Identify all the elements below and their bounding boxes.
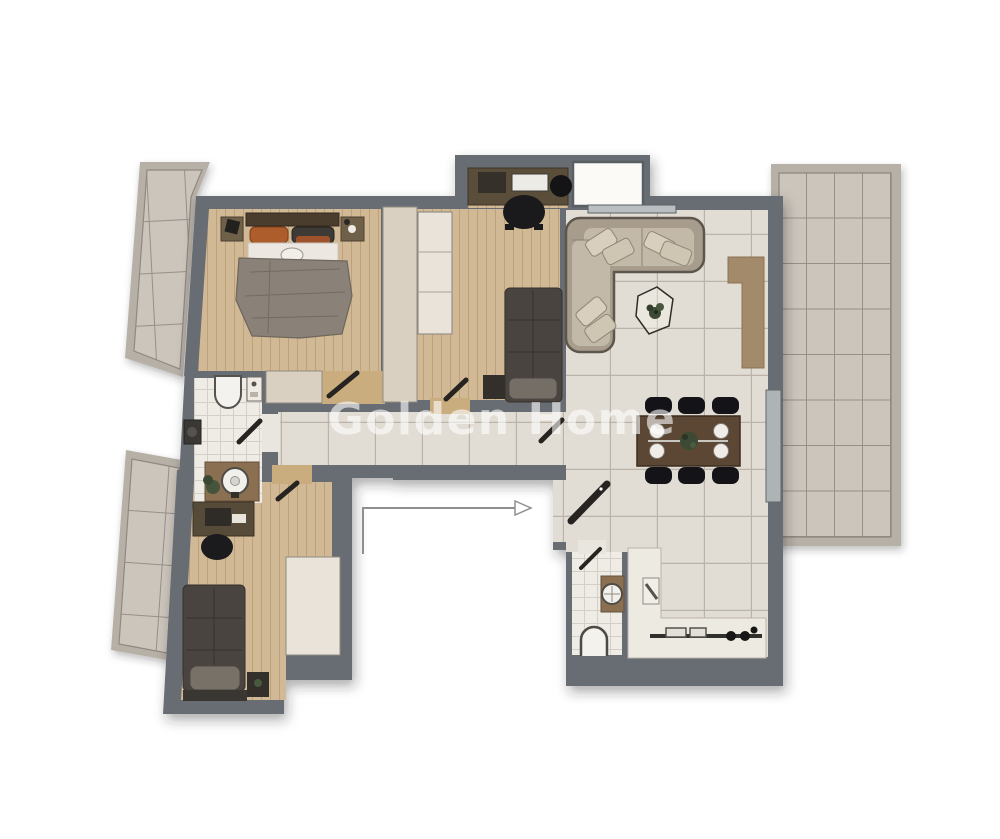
stool [550,175,572,197]
dining-chair [712,397,739,414]
floor-plan-canvas: Golden Home [0,0,1000,839]
doorway-wc [578,540,606,554]
dining-chair [678,397,705,414]
monitor [512,174,548,191]
laptop [205,508,231,526]
dining-chair [645,467,672,484]
kitchen-sink [690,628,706,637]
watermark: Golden Home [328,394,677,445]
closet-hall [266,371,322,403]
pillow [250,227,288,243]
window-living-top [588,205,676,213]
bed-headboard [246,213,339,226]
bed-blanket [236,258,352,338]
closet-between-bedrooms [383,207,417,402]
doorway-bath [262,414,280,452]
plate [714,444,729,459]
plate [650,444,665,459]
balcony-door-right [766,390,781,502]
stove-burner [726,631,736,641]
entrance-arrow [363,501,531,554]
plate [714,424,729,439]
laptop [478,172,506,193]
toilet [215,376,241,408]
office-chair [503,195,545,229]
doorway-bedroom3 [272,465,312,484]
kitchen-sink [666,628,686,637]
dining-chair [678,467,705,484]
wc-toilet [581,627,607,656]
centerpiece-plant [680,432,698,450]
floor-plan: Golden Home [0,0,1000,839]
stove-burner [740,631,750,641]
opening-entry [553,480,568,542]
bed-headboard [183,690,247,701]
closet-bedroom3 [286,557,340,655]
dining-chair [712,467,739,484]
shaft [573,162,643,206]
bed-pillow [190,666,240,690]
balcony-right [771,164,901,546]
office-chair [201,534,233,560]
wardrobe-bedroom2 [418,212,452,334]
bath-cabinet [247,377,262,401]
